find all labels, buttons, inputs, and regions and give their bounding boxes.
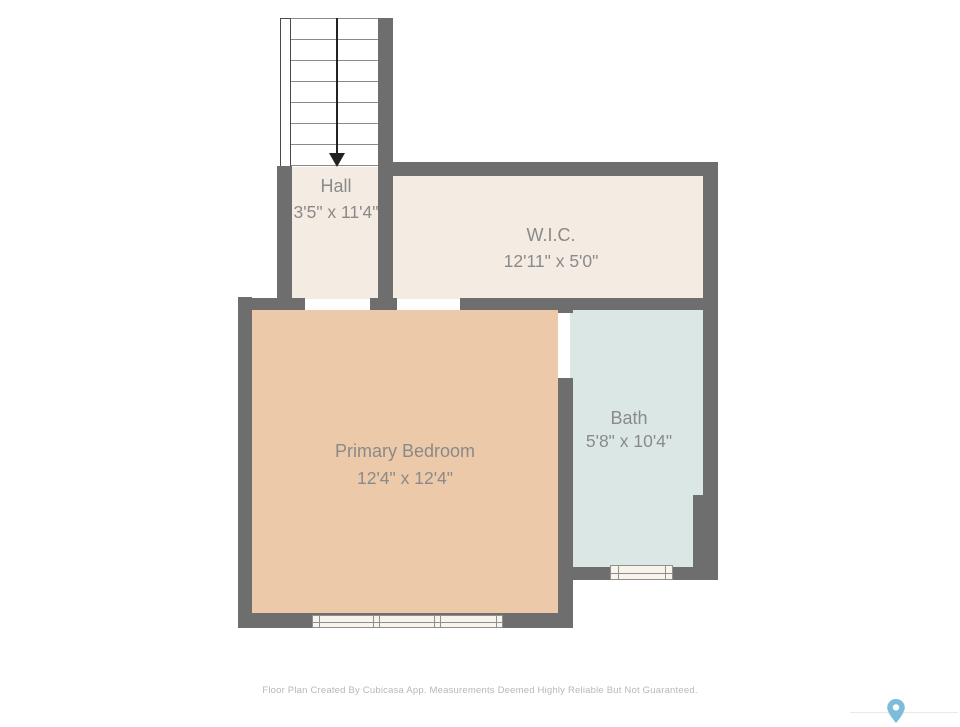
window-divider <box>373 616 374 627</box>
primary-bedroom-label: Primary Bedroom <box>255 440 555 462</box>
stair-rail <box>280 18 291 167</box>
wall-segment-mid-center <box>370 298 397 310</box>
window-divider <box>618 566 619 579</box>
floor-plan-canvas: Hall 3'5" x 11'4" W.I.C. 12'11" x 5'0" P… <box>0 0 960 720</box>
bath-label: Bath <box>559 407 699 429</box>
footer-disclaimer: Floor Plan Created By Cubicasa App. Meas… <box>0 685 960 696</box>
window-midline <box>611 573 672 574</box>
bath-dimensions: 5'8" x 10'4" <box>559 430 699 452</box>
primary-bedroom-dimensions: 12'4" x 12'4" <box>255 467 555 489</box>
wall-segment-top <box>378 162 718 176</box>
stair-direction-line <box>336 18 338 156</box>
window-divider <box>379 616 380 627</box>
wall-segment-mid-left <box>238 298 305 310</box>
window-divider <box>434 616 435 627</box>
wall-segment-bath-door-stub <box>558 298 573 313</box>
stair-treads <box>291 18 378 167</box>
wic-label: W.I.C. <box>451 224 651 246</box>
window-midline <box>313 622 502 623</box>
window-divider <box>496 616 497 627</box>
window-divider <box>319 616 320 627</box>
wic-dimensions: 12'11" x 5'0" <box>451 250 651 272</box>
bedroom-window <box>312 615 503 628</box>
window-divider <box>665 566 666 579</box>
window-divider <box>440 616 441 627</box>
stair-down-arrow-icon <box>329 153 345 167</box>
bath-window <box>610 565 673 580</box>
wall-segment-mid-right <box>460 298 718 310</box>
wall-segment-bedroom-bath-divider <box>558 378 573 628</box>
location-pin-icon <box>884 697 908 727</box>
wall-segment-left-outer <box>238 297 252 628</box>
wall-segment-hall-left <box>277 166 292 310</box>
